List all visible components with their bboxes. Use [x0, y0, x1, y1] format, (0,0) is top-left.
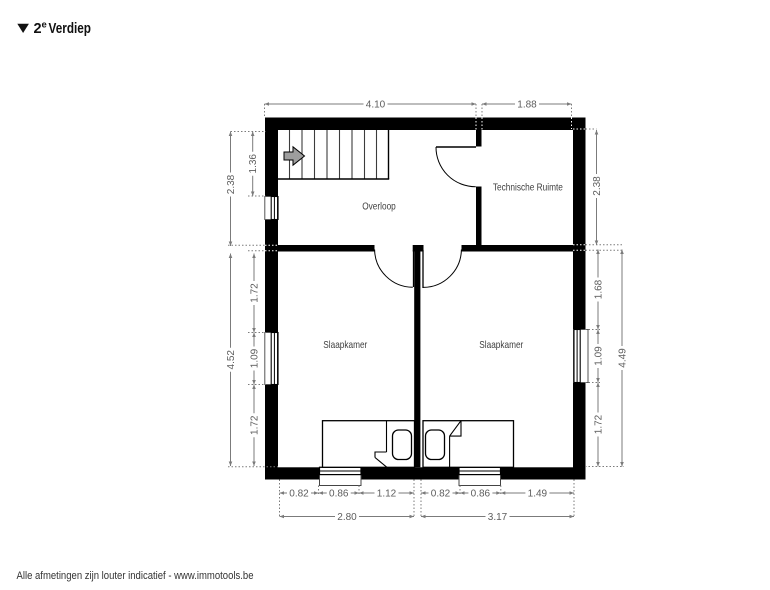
svg-text:Alle afmetingen zijn louter in: Alle afmetingen zijn louter indicatief -…	[17, 570, 254, 582]
svg-text:Slaapkamer: Slaapkamer	[323, 339, 367, 351]
svg-text:2.38: 2.38	[592, 176, 603, 196]
svg-text:Verdiep: Verdiep	[49, 21, 92, 37]
svg-text:0.82: 0.82	[431, 488, 451, 499]
svg-text:1.72: 1.72	[593, 414, 604, 434]
svg-text:4.52: 4.52	[226, 350, 237, 370]
svg-text:0.86: 0.86	[329, 488, 349, 499]
svg-text:Technische Ruimte: Technische Ruimte	[493, 181, 563, 193]
svg-text:Slaapkamer: Slaapkamer	[479, 339, 523, 351]
svg-text:3.17: 3.17	[488, 512, 508, 523]
svg-text:0.86: 0.86	[471, 488, 491, 499]
svg-text:1.12: 1.12	[377, 488, 397, 499]
svg-text:2: 2	[34, 21, 42, 37]
svg-text:2.80: 2.80	[337, 512, 357, 523]
svg-text:4.10: 4.10	[366, 99, 386, 110]
svg-text:e: e	[42, 20, 47, 31]
svg-text:1.49: 1.49	[528, 488, 548, 499]
svg-text:1.72: 1.72	[249, 283, 260, 303]
svg-text:1.36: 1.36	[248, 154, 259, 174]
svg-text:1.88: 1.88	[517, 99, 537, 110]
svg-text:1.72: 1.72	[249, 415, 260, 435]
svg-text:2.38: 2.38	[226, 174, 237, 194]
svg-text:4.49: 4.49	[617, 348, 628, 368]
svg-text:1.09: 1.09	[249, 348, 260, 368]
svg-text:0.82: 0.82	[289, 488, 309, 499]
svg-text:Overloop: Overloop	[362, 201, 396, 213]
svg-text:1.68: 1.68	[593, 279, 604, 299]
svg-text:1.09: 1.09	[593, 346, 604, 366]
